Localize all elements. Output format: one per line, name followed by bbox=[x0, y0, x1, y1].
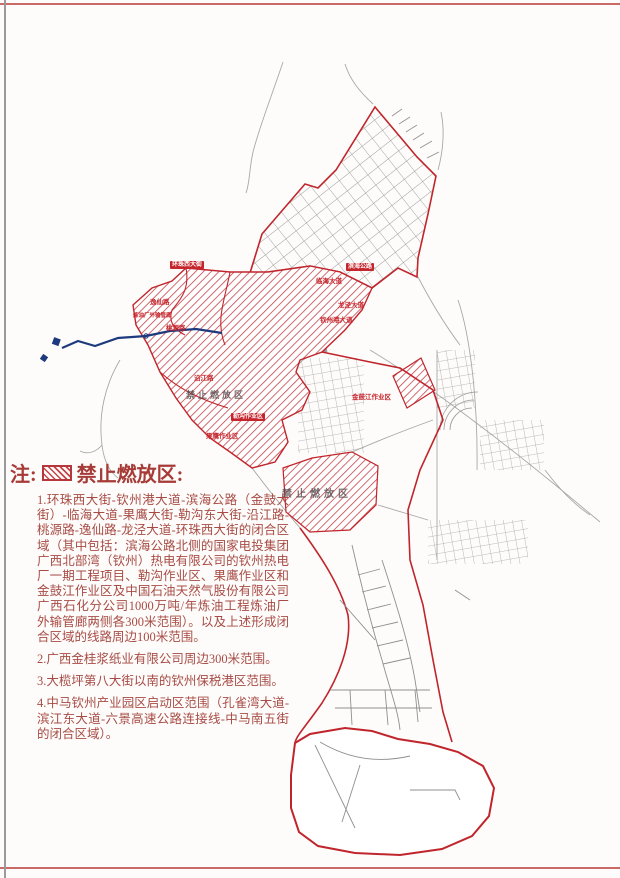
legend-prefix: 注: bbox=[10, 458, 37, 487]
map-label-pipeline: 炼油厂外输管廊 bbox=[133, 313, 172, 320]
pipeline-marker bbox=[52, 337, 61, 346]
map-label-area: 果鹰作业区 bbox=[206, 433, 239, 440]
map-label-area: 金鼓江作业区 bbox=[352, 394, 391, 401]
legend-body: 1.环珠西大街-钦州港大道-滨海公路（金鼓大街）-临海大道-果鹰大街-勒沟东大街… bbox=[10, 493, 302, 742]
map-label-road: 钦州港大道 bbox=[320, 317, 353, 324]
hatched-zone-east bbox=[393, 358, 435, 408]
note-item-4: 4.中马钦州产业园区启动区范围（孔雀湾大道-滨江东大道-六景高速公路连接线-中马… bbox=[37, 696, 289, 742]
note-item-3: 3.大榄坪第八大街以南的钦州保税港区范围。 bbox=[37, 674, 289, 689]
map-label-road: 临海大道 bbox=[316, 278, 342, 285]
map-label-road: 沿江路 bbox=[194, 375, 214, 382]
map-label-area: 勒沟作业区 bbox=[231, 413, 265, 421]
map-label-road: 滨海公路 bbox=[346, 263, 374, 271]
legend-heading: 禁止燃放区: bbox=[77, 458, 184, 487]
map-overlay-zone-name: 禁止燃放区 bbox=[186, 388, 246, 401]
legend-note: 注: 禁止燃放区: 1.环珠西大街-钦州港大道-滨海公路（金鼓大街）-临海大道-… bbox=[10, 458, 302, 749]
map-label-road: 龙泾大道 bbox=[338, 302, 364, 309]
note-item-2: 2.广西金桂浆纸业有限公司周边300米范围。 bbox=[37, 652, 289, 667]
urban-area-polygon bbox=[250, 107, 439, 288]
map-label-road: 环珠西大街 bbox=[170, 261, 204, 269]
legend-header: 注: 禁止燃放区: bbox=[10, 458, 302, 487]
hatch-legend-swatch bbox=[42, 465, 72, 481]
note-item-1: 1.环珠西大街-钦州港大道-滨海公路（金鼓大街）-临海大道-果鹰大街-勒沟东大街… bbox=[37, 493, 289, 645]
scanned-map-page: 环珠西大街 滨海公路 勒沟作业区 逸仙路 桃源路 沿江路 果鹰作业区 临海大道 … bbox=[0, 0, 620, 878]
map-label-road: 逸仙路 bbox=[150, 299, 170, 306]
pipeline-marker bbox=[40, 354, 48, 362]
map-label-road: 桃源路 bbox=[166, 325, 186, 332]
